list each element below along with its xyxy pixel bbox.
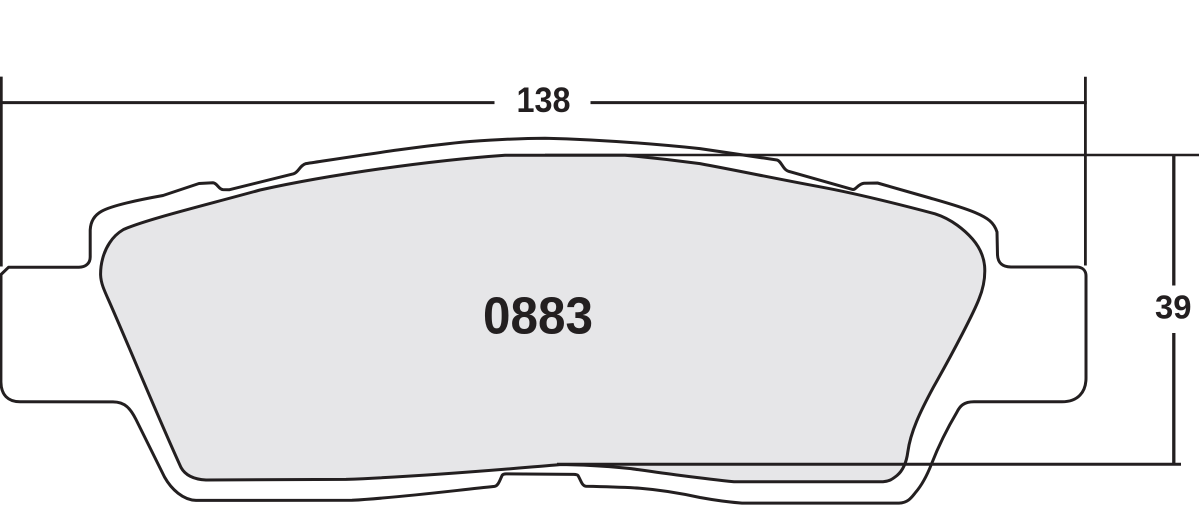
svg-text:138: 138 [517,80,571,120]
svg-text:0883: 0883 [483,288,593,346]
svg-text:39: 39 [1155,290,1192,327]
